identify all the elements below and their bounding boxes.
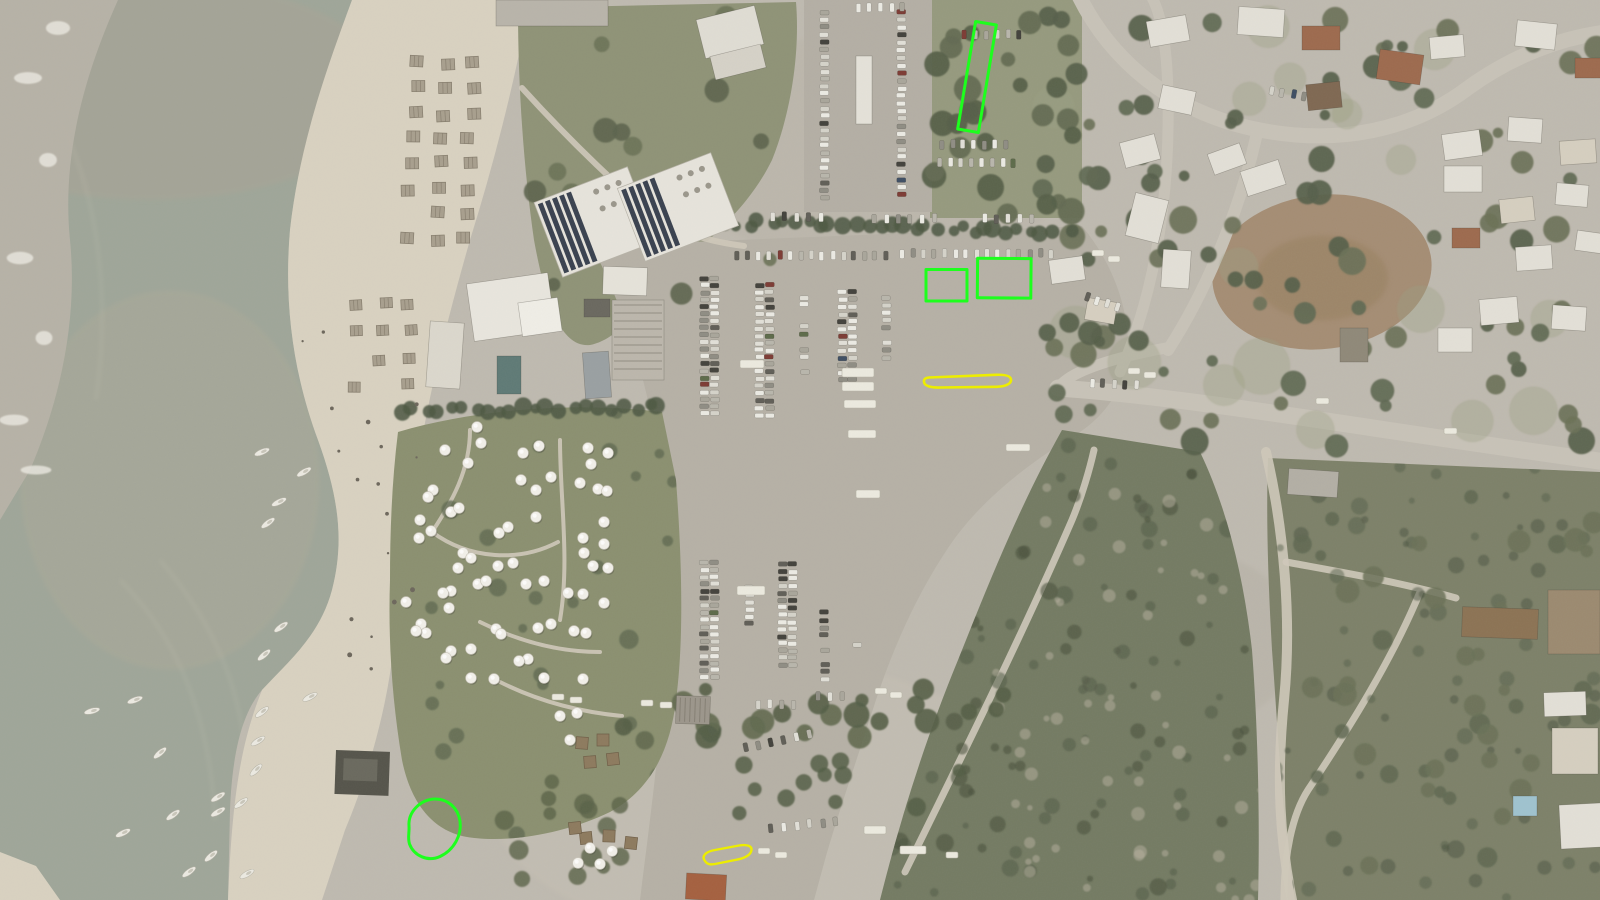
aerial-map-canvas[interactable]: [0, 0, 1600, 900]
satellite-photo: [0, 0, 1600, 900]
photo-grain: [0, 0, 1600, 900]
